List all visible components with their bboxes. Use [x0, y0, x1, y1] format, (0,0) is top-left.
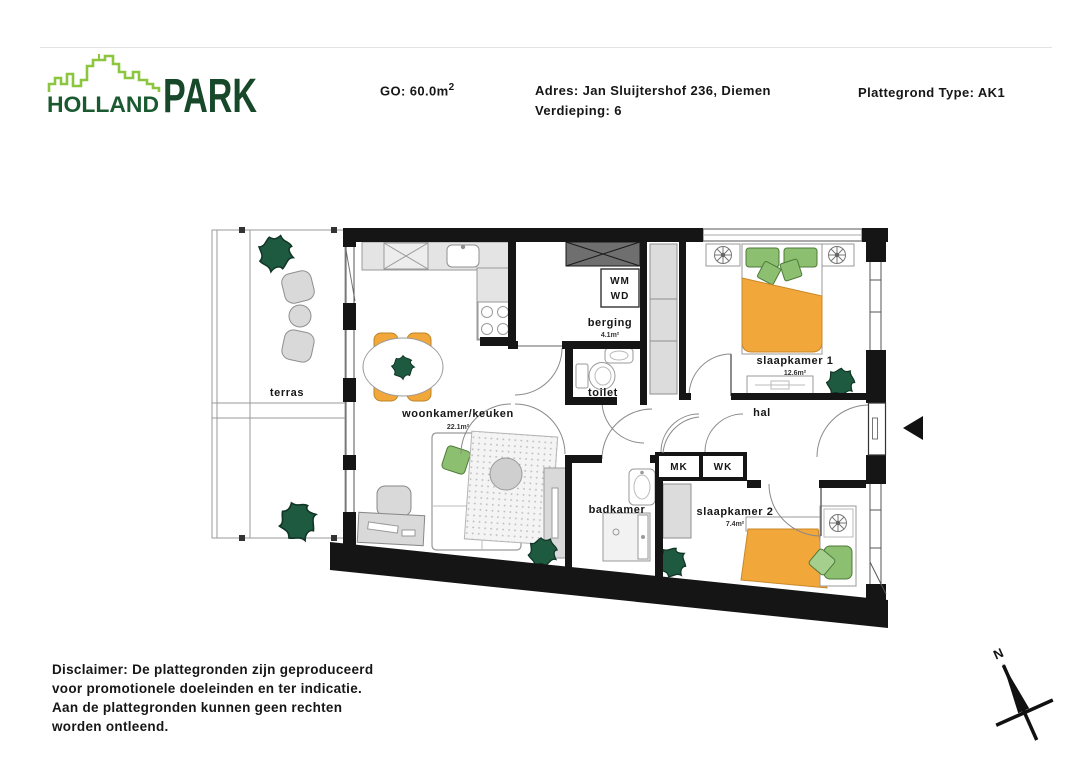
floorplan-page: HOLLAND PARK GO: 60.0m2 Adres: Jan Sluij…	[0, 0, 1092, 772]
bedroom2-furniture	[663, 484, 856, 588]
disclaimer-text: Disclaimer: De plattegronden zijn geprod…	[52, 660, 373, 736]
lamp-icon	[715, 247, 732, 264]
bedroom1-furniture	[703, 229, 862, 394]
room-area-slaapkamer2: 7.4m²	[726, 521, 745, 528]
room-area-woonkamer: 22.1m²	[447, 424, 470, 431]
room-label-berging: berging	[588, 317, 633, 329]
room-area-berging: 4.1m²	[601, 332, 620, 339]
kitchen-counter	[362, 242, 512, 340]
room-label-woonkamer: woonkamer/keuken	[401, 408, 514, 420]
room-label-toilet: toilet	[588, 387, 618, 399]
work-desk	[357, 486, 424, 546]
terras-table	[289, 305, 311, 327]
pillow	[746, 248, 779, 267]
toilet-sink	[605, 348, 633, 363]
stove	[478, 302, 511, 339]
room-label-slaapkamer2: slaapkamer 2	[697, 506, 774, 518]
lamp-icon	[829, 247, 846, 264]
plant-icon	[273, 496, 323, 547]
entrance-door	[869, 403, 886, 455]
room-label-terras: terras	[270, 387, 304, 399]
wd-label: WD	[611, 291, 630, 302]
entrance-arrow-icon	[903, 416, 923, 440]
wm-label: WM	[610, 276, 630, 287]
disclaimer-line: Aan de plattegronden kunnen geen rechten	[52, 698, 373, 717]
room-label-badkamer: badkamer	[589, 504, 646, 516]
washer-dryer-box: WM WD	[601, 269, 639, 307]
floorplan-drawing: WM WD	[0, 0, 1092, 772]
dining-set	[363, 333, 443, 401]
wardrobe	[663, 484, 691, 538]
disclaimer-line: voor promotionele doeleinden en ter indi…	[52, 679, 373, 698]
desk-chair	[377, 486, 411, 516]
mk-label: MK	[670, 462, 688, 473]
north-arrow-icon: N	[967, 634, 1065, 752]
plant-icon	[254, 231, 298, 277]
shower	[603, 513, 650, 561]
coffee-table	[490, 458, 522, 490]
disclaimer-line: Disclaimer: De plattegronden zijn geprod…	[52, 660, 373, 679]
room-label-slaapkamer1: slaapkamer 1	[757, 355, 834, 367]
hall-closet	[650, 244, 677, 394]
toilet-fixtures	[576, 348, 633, 390]
compass-n-label: N	[991, 645, 1006, 663]
lamp-icon	[830, 515, 847, 532]
bathroom-sink	[629, 469, 655, 505]
terras-balcony	[212, 230, 345, 538]
room-area-slaapkamer1: 12.6m²	[784, 370, 807, 377]
disclaimer-line: worden ontleend.	[52, 717, 373, 736]
wk-label: WK	[714, 462, 733, 473]
room-label-hal: hal	[753, 407, 771, 419]
